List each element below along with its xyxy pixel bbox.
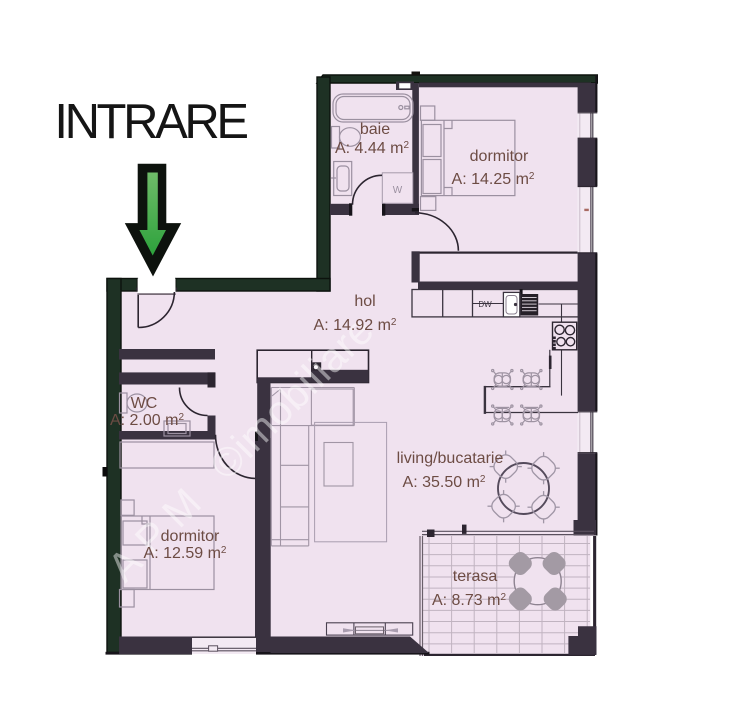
svg-text:A: 14.25 m2: A: 14.25 m2 bbox=[452, 171, 535, 188]
svg-text:A: 12.59 m2: A: 12.59 m2 bbox=[144, 545, 227, 562]
svg-text:dormitor: dormitor bbox=[470, 148, 529, 165]
svg-text:INTRARE: INTRARE bbox=[54, 95, 247, 149]
svg-text:hol: hol bbox=[354, 293, 375, 310]
svg-text:A: 2.00 m2: A: 2.00 m2 bbox=[110, 412, 184, 429]
svg-text:dormitor: dormitor bbox=[161, 528, 220, 545]
svg-text:terasa: terasa bbox=[453, 568, 498, 585]
svg-text:A: 14.92 m2: A: 14.92 m2 bbox=[314, 317, 397, 334]
svg-text:A: 4.44 m2: A: 4.44 m2 bbox=[335, 140, 409, 157]
svg-text:W: W bbox=[393, 185, 403, 196]
svg-text:A: 35.50 m2: A: 35.50 m2 bbox=[403, 474, 486, 491]
svg-text:DW: DW bbox=[478, 300, 492, 309]
svg-text:WC: WC bbox=[131, 395, 158, 412]
svg-text:baie: baie bbox=[360, 121, 390, 138]
svg-text:A: 8.73 m2: A: 8.73 m2 bbox=[432, 592, 506, 609]
svg-text:living/bucatarie: living/bucatarie bbox=[397, 450, 504, 467]
